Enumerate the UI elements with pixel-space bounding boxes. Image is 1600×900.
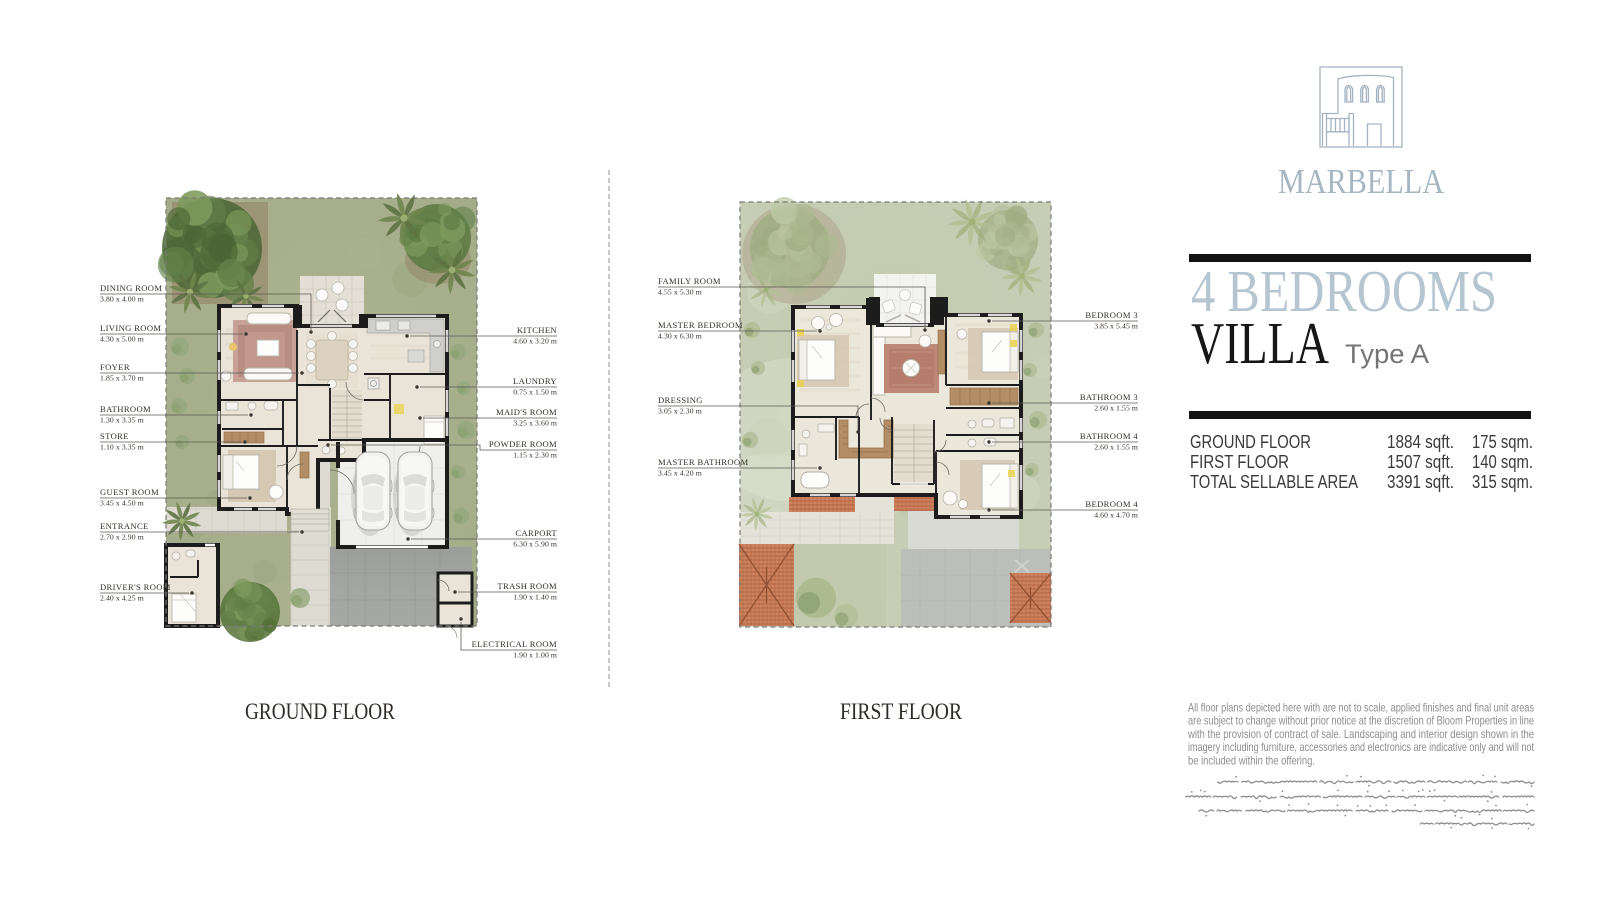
svg-text:VILLA: VILLA <box>1191 310 1329 376</box>
svg-text:with the provision of contract: with the provision of contract of sale. … <box>1187 728 1534 741</box>
svg-text:All floor plans depicted here: All floor plans depicted here with are n… <box>1188 702 1534 715</box>
svg-text:be included within the offerin: be included within the offering. <box>1188 754 1315 767</box>
svg-text:315 sqm.: 315 sqm. <box>1472 471 1533 492</box>
svg-text:1507 sqft.: 1507 sqft. <box>1387 451 1454 472</box>
svg-text:FIRST FLOOR: FIRST FLOOR <box>1190 451 1289 472</box>
svg-text:1884 sqft.: 1884 sqft. <box>1387 431 1454 452</box>
svg-text:MARBELLA: MARBELLA <box>1278 162 1445 201</box>
svg-text:GROUND FLOOR: GROUND FLOOR <box>1190 431 1311 452</box>
svg-text:imagery including furniture, a: imagery including furniture, accessories… <box>1188 741 1535 754</box>
svg-text:140 sqm.: 140 sqm. <box>1472 451 1533 472</box>
svg-text:3391 sqft.: 3391 sqft. <box>1387 471 1454 492</box>
svg-text:are subject to change without: are subject to change without prior noti… <box>1188 715 1534 728</box>
svg-text:Type A: Type A <box>1345 339 1429 369</box>
svg-text:TOTAL SELLABLE AREA: TOTAL SELLABLE AREA <box>1190 471 1359 492</box>
svg-text:175 sqm.: 175 sqm. <box>1472 431 1533 452</box>
